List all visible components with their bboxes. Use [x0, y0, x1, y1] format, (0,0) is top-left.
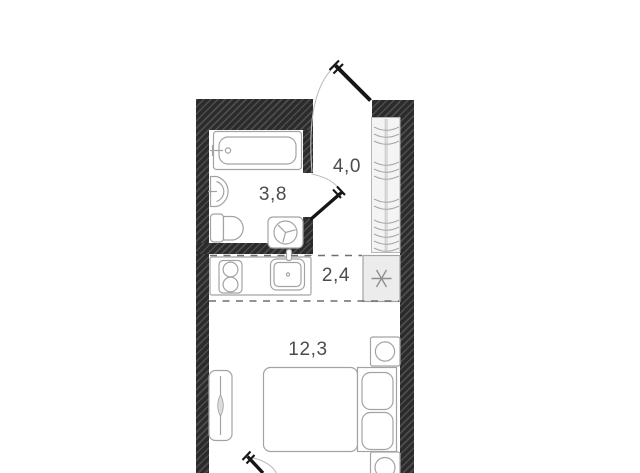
- stove-icon: [219, 261, 242, 294]
- floor-plan: 3,8 4,0 2,4 12,3: [0, 0, 640, 473]
- kitchen-sink-icon: [271, 250, 305, 291]
- wardrobe-icon: [372, 118, 401, 253]
- balcony-door-icon: [243, 452, 277, 473]
- room-label-kitchen: 2,4: [322, 265, 350, 287]
- nightstand-top-icon: [371, 337, 401, 366]
- fixtures-layer: [0, 0, 640, 473]
- bathroom-door-icon: [311, 174, 346, 220]
- bed-icon: [264, 368, 397, 452]
- room-label-bathroom: 3,8: [259, 184, 287, 206]
- ventilation-shaft-icon: [363, 256, 400, 302]
- room-label-living-room: 12,3: [288, 339, 327, 361]
- nightstand-bottom-icon: [371, 452, 401, 473]
- wash-basin-icon: [208, 177, 228, 207]
- bathtub-icon: [210, 132, 302, 170]
- room-label-hallway: 4,0: [333, 156, 361, 178]
- cabinet-icon: [209, 371, 232, 441]
- toilet-icon: [211, 214, 244, 242]
- washing-machine-icon: [268, 217, 303, 248]
